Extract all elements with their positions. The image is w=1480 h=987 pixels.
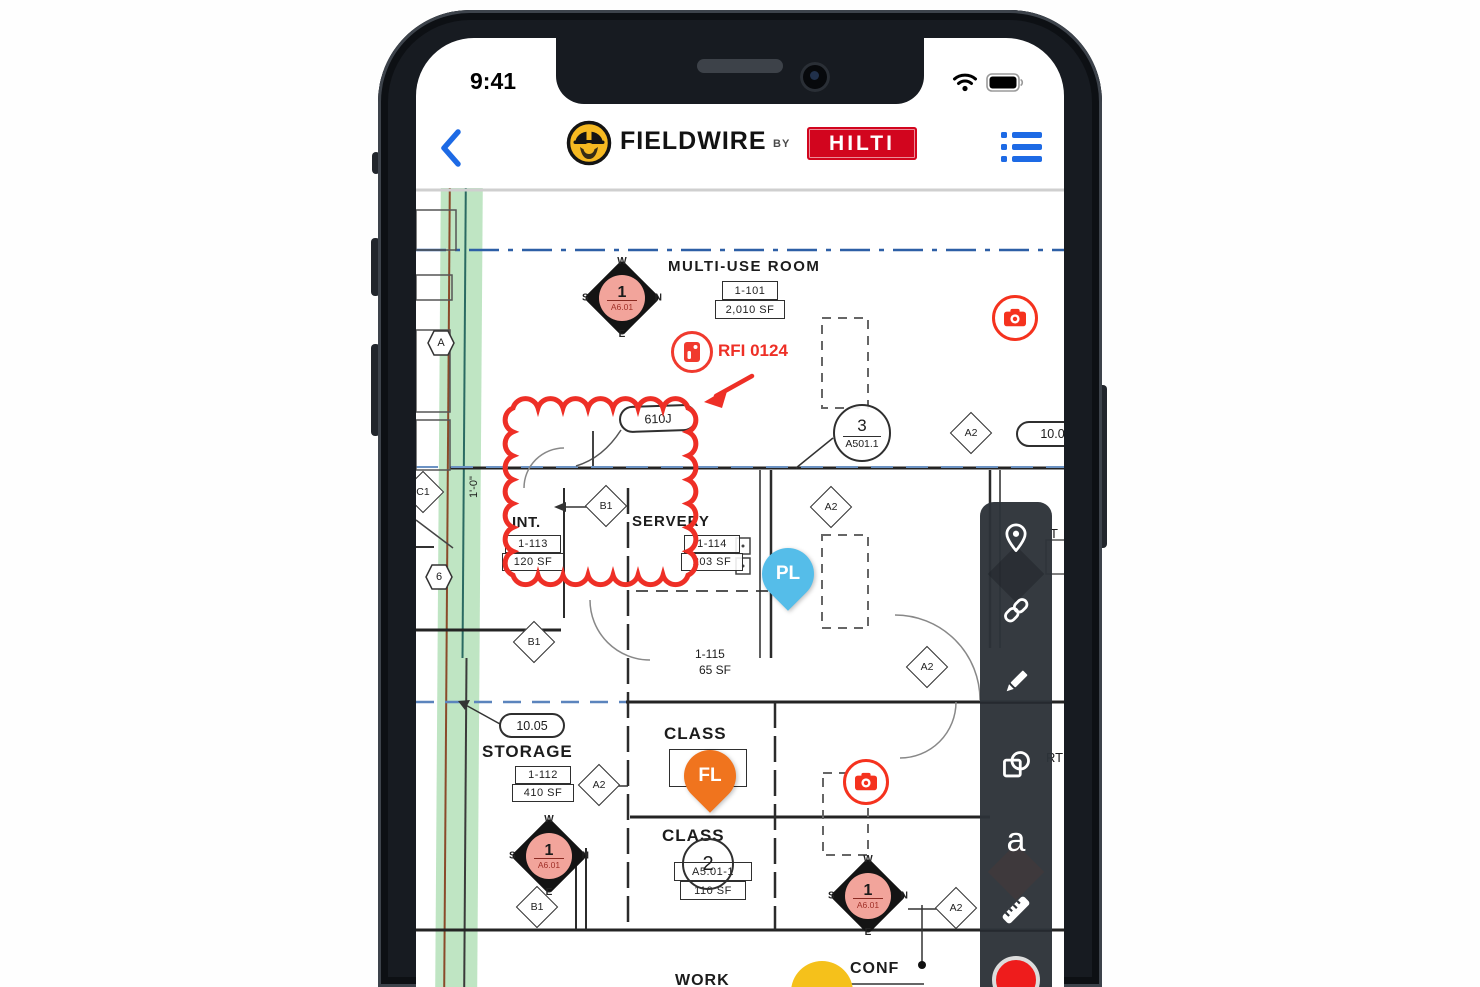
photo-marker-1[interactable] (992, 295, 1038, 341)
status-icons (952, 72, 1024, 92)
tool-shapes[interactable] (994, 743, 1038, 787)
camera-icon (1002, 307, 1028, 329)
shapes-icon (999, 748, 1033, 782)
task-pin-pl[interactable]: PL (751, 537, 825, 611)
task-pin-fl[interactable]: FL (673, 739, 747, 813)
notch (556, 38, 924, 104)
camera-icon (853, 771, 879, 793)
tool-ruler[interactable] (994, 888, 1038, 932)
link-icon (1000, 594, 1032, 626)
app-header: FIELDWIRE BY HILTI (416, 114, 1064, 186)
rfi-marker[interactable] (671, 331, 713, 373)
tool-link[interactable] (994, 588, 1038, 632)
fieldwire-logo-icon (566, 120, 612, 166)
tool-record-button[interactable] (992, 956, 1040, 987)
task-pin-fl-label: FL (684, 750, 736, 802)
revision-cloud (505, 399, 696, 585)
wifi-icon (952, 72, 978, 92)
by-label: BY (773, 138, 790, 150)
list-icon (1001, 132, 1045, 138)
pencil-icon (1000, 666, 1032, 698)
floorplan-canvas[interactable]: MULTI-USE ROOM 1-101 2,010 SF INT. 1-113… (416, 188, 1064, 987)
task-pin-pl-label: PL (762, 548, 814, 600)
front-camera (800, 62, 830, 92)
page: 9:41 (0, 0, 1480, 987)
chevron-left-icon (434, 124, 470, 172)
battery-icon (986, 73, 1024, 92)
ruler-icon (999, 893, 1033, 927)
phone-screen: 9:41 (416, 38, 1064, 987)
earpiece-speaker (697, 59, 783, 73)
menu-list-button[interactable] (1001, 130, 1045, 164)
hilti-logo: HILTI (807, 127, 917, 160)
app-title: FIELDWIRE (620, 127, 767, 156)
tool-text[interactable]: a (994, 818, 1038, 862)
text-tool-icon: a (1007, 823, 1026, 857)
markup-layer (416, 188, 1064, 987)
tool-location-pin[interactable] (994, 516, 1038, 560)
markup-tool-palette: a (980, 502, 1052, 987)
rfi-doc-icon (682, 340, 702, 364)
photo-marker-2[interactable] (843, 759, 889, 805)
phone-frame: 9:41 (378, 10, 1102, 987)
tool-pencil[interactable] (994, 660, 1038, 704)
rfi-label[interactable]: RFI 0124 (718, 341, 788, 361)
status-time: 9:41 (470, 68, 516, 95)
location-pin-icon (1000, 522, 1032, 554)
back-button[interactable] (434, 124, 470, 172)
